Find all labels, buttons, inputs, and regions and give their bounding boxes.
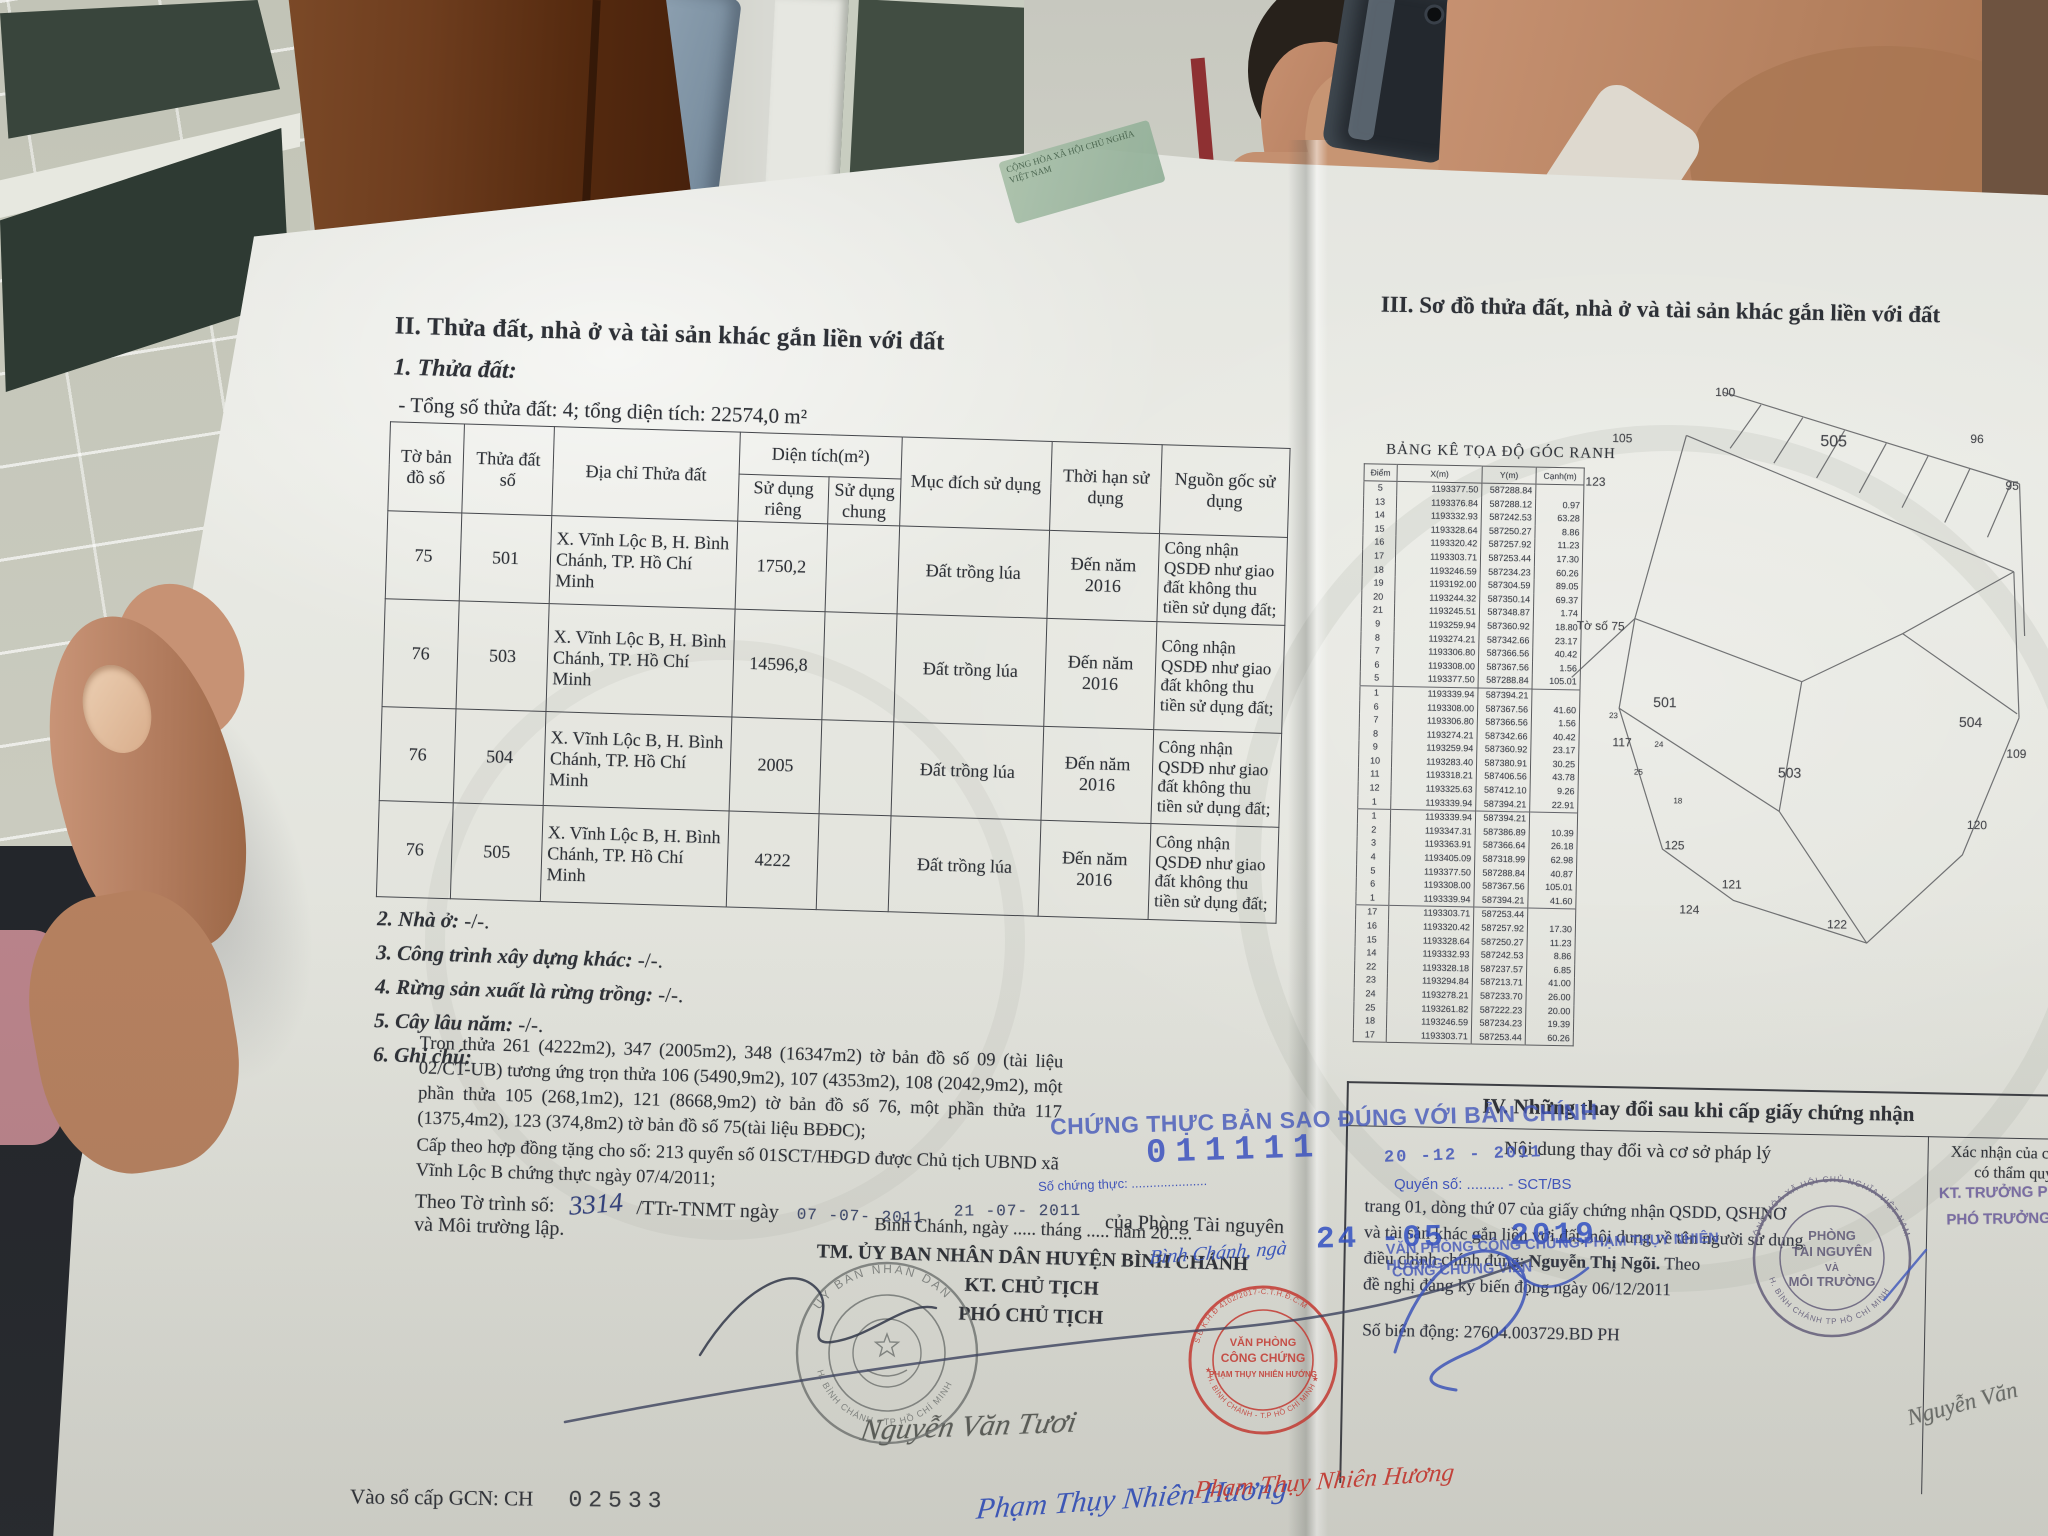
cell-address: X. Vĩnh Lộc B, H. Bình Chánh, TP. Hồ Chí… [546, 603, 735, 716]
neighbor-label-96: 96 [1970, 432, 1984, 446]
cell-origin: Công nhận QSDĐ như giao đất không thu ti… [1151, 729, 1282, 827]
col-common-use: Sử dụng chung [828, 477, 901, 526]
coord-point: 4 [1357, 850, 1390, 864]
coord-point: 17 [1362, 549, 1395, 563]
coord-y: 587380.91 [1476, 756, 1530, 771]
gcn-number: 02533 [568, 1487, 667, 1514]
coord-point: 11 [1358, 768, 1391, 782]
coord-y: 587367.56 [1477, 702, 1531, 717]
cell-term: Đến năm 2016 [1038, 820, 1151, 919]
neighbor-label-100: 100 [1715, 385, 1736, 399]
coord-y: 587213.71 [1472, 976, 1526, 991]
neighbor-label-109: 109 [2006, 747, 2027, 761]
red-stamp-line1: VĂN PHÒNG [1230, 1336, 1297, 1349]
coord-point: 16 [1363, 536, 1396, 550]
vertex-label-24: 24 [1654, 740, 1664, 749]
cell-common-area [825, 524, 900, 614]
coord-table-body: 5 1193377.50 587288.84 13 1193376.84 587… [1353, 481, 1584, 1046]
item-label: 4. Rừng sản xuất là rừng trồng: [375, 974, 653, 1006]
certify-number-value: 011111 [1145, 1129, 1323, 1173]
coord-point: 25 [1354, 1001, 1387, 1015]
cell-address: X. Vĩnh Lộc B, H. Bình Chánh, TP. Hồ Chí… [543, 711, 732, 810]
coord-point: 22 [1355, 960, 1388, 974]
coord-point: 3 [1357, 837, 1390, 851]
cell-address: X. Vĩnh Lộc B, H. Bình Chánh, TP. Hồ Chí… [549, 515, 738, 608]
department-round-stamp: CỘNG HÒA XÃ HỘI CHỦ NGHĨA VIỆT NAM H. BÌ… [1742, 1168, 1922, 1348]
neighbor-label-121: 121 [1722, 877, 1743, 891]
coord-point: 1 [1358, 795, 1391, 810]
cell-purpose: Đất trồng lúa [891, 722, 1044, 820]
coord-y: 587394.21 [1476, 797, 1530, 812]
cell-parcel-no: 505 [450, 803, 543, 902]
coord-point: 15 [1363, 522, 1396, 536]
gcn-entry-line: Vào sổ cấp GCN: CH 02533 [350, 1484, 668, 1514]
parcel-sketch-diagram: 100 105 505 96 95 123 Tờ số 75 501 504 1… [1562, 375, 2046, 1114]
coord-y: 587394.21 [1475, 811, 1529, 826]
col-address: Địa chỉ Thửa đất [552, 427, 741, 521]
page-left: II. Thửa đất, nhà ở và tài sản khác gắn … [209, 150, 1350, 1536]
col-origin: Nguồn gốc sử dụng [1160, 445, 1291, 538]
coord-point: 14 [1363, 508, 1396, 522]
svg-text:S.Đ.K.H.Đ 4102/2017-C.T.H.Đ.C.: S.Đ.K.H.Đ 4102/2017-C.T.H.Đ.C.M [1192, 1287, 1309, 1344]
neighbor-label-123: 123 [1585, 475, 1606, 489]
col-area: Diện tích(m²) [739, 432, 902, 479]
cell-term: Đến năm 2016 [1044, 618, 1157, 729]
coord-y: 587288.84 [1478, 674, 1532, 689]
coord-point: 21 [1361, 604, 1394, 618]
neighbor-label-117: 117 [1612, 735, 1632, 749]
dept-stamp-line3: VÀ [1825, 1261, 1839, 1274]
col-right-line2: có thẩm quyền [1931, 1162, 2048, 1185]
notary-red-stamp: S.Đ.K.H.Đ 4102/2017-C.T.H.Đ.C.M ★ H. BÌN… [1185, 1282, 1341, 1438]
coord-y: 587360.92 [1479, 619, 1533, 634]
coord-point: 20 [1362, 590, 1395, 604]
cell-private-area: 2005 [729, 717, 822, 814]
coord-point: 10 [1358, 754, 1391, 768]
coord-point: 6 [1360, 700, 1393, 714]
neighbor-label-124: 124 [1679, 902, 1700, 916]
item-label: 3. Công trình xây dựng khác: [376, 940, 633, 972]
cell-origin: Công nhận QSDĐ như giao đất không thu ti… [1157, 533, 1288, 625]
coord-point: 9 [1361, 617, 1394, 631]
item-value: -/-. [658, 982, 684, 1007]
coord-y: 587233.70 [1472, 989, 1526, 1004]
coord-point: 7 [1361, 644, 1394, 658]
coord-point: 5 [1356, 864, 1389, 878]
theo-label: Theo Tờ trình số: [415, 1190, 555, 1216]
red-stamp-arc-top: S.Đ.K.H.Đ 4102/2017-C.T.H.Đ.C.M [1192, 1287, 1309, 1344]
coord-y: 587242.53 [1481, 511, 1535, 526]
coord-point: 1 [1356, 891, 1389, 906]
phone-camera [1426, 6, 1442, 22]
coord-point: 18 [1353, 1014, 1386, 1028]
coord-y: 587288.84 [1474, 866, 1528, 881]
neighbor-label-95: 95 [2005, 479, 2019, 493]
photo-scene: CỘNG HÒA XÃ HỘI CHỦ NGHĨA VIỆT NAM II. T… [0, 0, 2048, 1536]
red-stamp-line3: PHẠM THỤY NHIÊN HƯỚNG [1209, 1370, 1317, 1379]
coord-point: 18 [1362, 563, 1395, 577]
coord-y: 587257.92 [1481, 538, 1535, 553]
cell-origin: Công nhận QSDĐ như giao đất không thu ti… [1154, 621, 1285, 733]
col-map-sheet: Tờ bản đồ số [388, 422, 465, 513]
coord-point: 9 [1359, 741, 1392, 755]
coord-x: 1193303.71 [1386, 1029, 1471, 1045]
coord-point: 2 [1357, 823, 1390, 837]
coord-y: 587253.44 [1474, 907, 1528, 922]
coord-y: 587257.92 [1473, 921, 1527, 936]
neighbor-label-120: 120 [1967, 818, 1988, 832]
svg-text:ỦY BAN NHÂN DÂN: ỦY BAN NHÂN DÂN [810, 1261, 955, 1311]
item-value: -/-. [518, 1012, 544, 1037]
sheet-label: Tờ số 75 [1577, 618, 1625, 633]
cell-origin: Công nhận QSDĐ như giao đất không thu ti… [1148, 823, 1279, 923]
purple-kt-truong-phong: KT. TRƯỞNG PHÒNG [1939, 1183, 2048, 1202]
item-value: -/-. [638, 948, 664, 973]
coord-y: 587288.84 [1482, 483, 1536, 498]
cell-term: Đến năm 2016 [1047, 530, 1160, 621]
parcel-label-501: 501 [1653, 694, 1677, 710]
section4-col-right: Xác nhận của cơ quan có thẩm quyền [1931, 1142, 2048, 1185]
coord-point: 8 [1359, 727, 1392, 741]
coord-point: 14 [1355, 946, 1388, 960]
coord-point: 7 [1359, 713, 1392, 727]
coord-point: 17 [1356, 905, 1389, 920]
land-parcel-table: Tờ bản đồ số Thửa đất số Địa chỉ Thửa đấ… [376, 421, 1291, 923]
item-value: -/-. [464, 909, 490, 934]
col-purpose: Mục đích sử dụng [900, 437, 1053, 530]
coord-y: 587350.14 [1480, 592, 1534, 607]
phone-screen-glare [1347, 0, 1396, 141]
cell-private-area: 4222 [726, 811, 819, 910]
col-private-use: Sử dụng riêng [738, 474, 829, 523]
section4-divider [1921, 1136, 1929, 1494]
coord-y: 587250.27 [1473, 935, 1527, 950]
neighbor-label-122: 122 [1827, 917, 1848, 931]
neighbor-label-125: 125 [1664, 838, 1685, 852]
cell-common-area [816, 813, 891, 911]
coord-y: 587222.23 [1472, 1003, 1526, 1018]
coord-y: 587318.99 [1475, 853, 1529, 868]
coord-point: 12 [1358, 781, 1391, 795]
cell-map-sheet: 76 [382, 598, 459, 708]
coord-col-x: X(m) [1397, 464, 1482, 483]
svg-text:H. BÌNH CHÁNH • TP HỒ CHÍ MINH: H. BÌNH CHÁNH • TP HỒ CHÍ MINH [815, 1368, 954, 1427]
handwritten-number: 3314 [567, 1187, 623, 1222]
coord-row: 17 1193303.71 587253.44 60.26 [1353, 1028, 1573, 1046]
coord-point: 6 [1356, 877, 1389, 891]
cell-term: Đến năm 2016 [1041, 726, 1154, 823]
stamp-arc-bottom: H. BÌNH CHÁNH • TP HỒ CHÍ MINH [815, 1368, 954, 1427]
page-right: III. Sơ đồ thửa đất, nhà ở và tài sản kh… [1273, 140, 2048, 1536]
col-term: Thời hạn sử dụng [1050, 441, 1163, 533]
coord-y: 587348.87 [1479, 606, 1533, 621]
vertex-label-23: 23 [1609, 711, 1619, 720]
change-line-5: Số biến động: 27604.003729.BD PH [1362, 1319, 1620, 1345]
coord-point: 19 [1362, 576, 1395, 590]
coord-point: 6 [1360, 658, 1393, 672]
cell-parcel-no: 501 [459, 513, 552, 604]
cell-address: X. Vĩnh Lộc B, H. Bình Chánh, TP. Hồ Chí… [540, 805, 729, 906]
dept-stamp-line2: TÀI NGUYÊN [1792, 1244, 1872, 1259]
coord-point: 17 [1353, 1028, 1386, 1043]
section2-title: II. Thửa đất, nhà ở và tài sản khác gắn … [394, 312, 945, 356]
coord-y: 587242.53 [1473, 949, 1527, 964]
parcel-label-503: 503 [1778, 764, 1802, 780]
land-table-body: 75 501 X. Vĩnh Lộc B, H. Bình Chánh, TP.… [376, 510, 1287, 923]
vertex-label-18: 18 [1673, 796, 1683, 805]
coord-y: 587360.92 [1477, 743, 1531, 758]
cell-map-sheet: 75 [385, 510, 462, 600]
vertex-label-25: 25 [1634, 768, 1644, 777]
coord-y: 587288.12 [1481, 497, 1535, 512]
coord-point: 23 [1354, 974, 1387, 988]
coord-y: 587366.64 [1475, 839, 1529, 854]
cell-parcel-no: 504 [453, 709, 546, 806]
coord-point: 16 [1355, 919, 1388, 933]
coordinate-table: Điểm X(m) Y(m) Cạnh(m) 5 1193377.50 5872… [1353, 463, 1585, 1046]
gcn-label: Vào sổ cấp GCN: CH [350, 1484, 533, 1510]
parcel-label-505: 505 [1820, 433, 1847, 451]
cell-common-area [819, 719, 894, 815]
coord-y: 587234.23 [1471, 1017, 1525, 1032]
coord-point: 13 [1363, 495, 1396, 509]
dept-stamp-line4: MÔI TRƯỜNG [1789, 1274, 1876, 1289]
coord-y: 587366.56 [1477, 716, 1531, 731]
col-parcel-no: Thửa đất số [462, 424, 555, 515]
committee-round-stamp: ỦY BAN NHÂN DÂN H. BÌNH CHÁNH • TP HỒ CH… [792, 1258, 982, 1448]
coord-y: 587342.66 [1477, 729, 1531, 744]
coord-point: 1 [1357, 809, 1390, 824]
coord-y: 587342.66 [1479, 633, 1533, 648]
coord-point: 1 [1360, 686, 1393, 701]
notes-paragraph-1: Trọn thửa 261 (4222m2), 347 (2005m2), 34… [417, 1031, 1064, 1150]
purple-pho-truong-phong: PHÓ TRƯỞNG PHÒNG [1946, 1209, 2048, 1229]
coord-y: 587253.44 [1480, 552, 1534, 567]
coord-point: 24 [1354, 987, 1387, 1001]
coord-point: 5 [1360, 672, 1393, 687]
coord-y: 587366.56 [1479, 647, 1533, 662]
section4-box: IV. Những thay đổi sau khi cấp giấy chứn… [1339, 1081, 2048, 1496]
coord-y: 587237.57 [1472, 962, 1526, 977]
cell-purpose: Đất trồng lúa [894, 614, 1047, 726]
coord-y: 587394.21 [1474, 893, 1528, 908]
item-label: 2. Nhà ở: [377, 906, 460, 932]
red-stamp-line2: CÔNG CHỨNG [1221, 1350, 1306, 1365]
cell-purpose: Đất trồng lúa [888, 816, 1041, 916]
coord-point: 8 [1361, 631, 1394, 645]
cell-purpose: Đất trồng lúa [897, 526, 1050, 618]
stamp-arc-top: ỦY BAN NHÂN DÂN [810, 1261, 955, 1311]
coord-point: 15 [1355, 933, 1388, 947]
coord-y: 587253.44 [1471, 1030, 1525, 1045]
notes-last-line: và Môi trường lập. [414, 1213, 565, 1240]
coord-y: 587367.56 [1474, 880, 1528, 895]
coord-y: 587406.56 [1476, 770, 1530, 785]
cell-private-area: 14596,8 [732, 609, 825, 720]
neighbor-label-105: 105 [1612, 431, 1633, 445]
coord-col-y: Y(m) [1482, 466, 1536, 484]
cell-private-area: 1750,2 [735, 521, 828, 612]
coord-y: 587250.27 [1481, 524, 1535, 539]
cell-parcel-no: 503 [456, 601, 549, 712]
section2-1-title: 1. Thửa đất: [393, 354, 517, 385]
coord-col-point: Điểm [1364, 464, 1397, 482]
section3-title: III. Sơ đồ thửa đất, nhà ở và tài sản kh… [1381, 292, 2048, 331]
coord-y: 587304.59 [1480, 579, 1534, 594]
coord-y: 587386.89 [1475, 825, 1529, 840]
coord-y: 587367.56 [1478, 660, 1532, 675]
book-number-line: Quyển số: ......... - SCT/BS [1394, 1176, 1572, 1193]
coord-y: 587234.23 [1480, 565, 1534, 580]
coord-point: 5 [1364, 481, 1397, 496]
parcel-label-504: 504 [1959, 714, 1983, 730]
coord-y: 587412.10 [1476, 784, 1530, 799]
cell-map-sheet: 76 [379, 706, 456, 802]
cell-common-area [822, 612, 897, 722]
dept-stamp-line1: PHÒNG [1808, 1228, 1856, 1243]
coord-y: 587394.21 [1478, 688, 1532, 703]
theo-mid: /TTr-TNMT ngày [636, 1197, 779, 1223]
cell-map-sheet: 76 [376, 800, 453, 898]
